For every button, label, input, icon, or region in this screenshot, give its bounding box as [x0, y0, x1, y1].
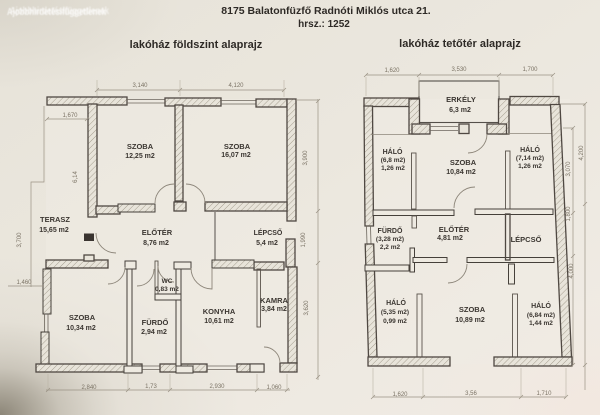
svg-text:LÉPCSŐ: LÉPCSŐ: [511, 235, 542, 244]
svg-text:(5,35 m2): (5,35 m2): [381, 309, 409, 316]
svg-text:3,140: 3,140: [132, 83, 148, 89]
svg-text:ERKÉLY: ERKÉLY: [446, 95, 476, 104]
svg-text:2,930: 2,930: [209, 384, 225, 390]
svg-text:0,83 m2: 0,83 m2: [155, 286, 179, 293]
svg-text:10,61 m2: 10,61 m2: [204, 318, 234, 325]
svg-text:lakóház földszint alaprajz: lakóház földszint alaprajz: [130, 39, 263, 51]
svg-text:FÜRDŐ: FÜRDŐ: [142, 318, 169, 327]
svg-text:2,840: 2,840: [81, 385, 97, 391]
svg-text:5,4 m2: 5,4 m2: [256, 240, 278, 247]
svg-text:HÁLÓ: HÁLÓ: [531, 301, 551, 310]
svg-text:SZOBA: SZOBA: [450, 158, 477, 167]
svg-text:3,070: 3,070: [566, 161, 572, 177]
svg-text:(6,84 m2): (6,84 m2): [527, 312, 555, 319]
svg-text:6,3 m2: 6,3 m2: [449, 107, 471, 114]
svg-text:KONYHA: KONYHA: [203, 307, 236, 316]
svg-text:4,000: 4,000: [569, 263, 575, 279]
svg-text:WC: WC: [162, 278, 173, 285]
svg-text:4,120: 4,120: [228, 83, 244, 89]
svg-text:10,89 m2: 10,89 m2: [455, 317, 485, 324]
svg-text:SZOBA: SZOBA: [459, 305, 486, 314]
svg-text:10,84 m2: 10,84 m2: [446, 169, 476, 176]
svg-text:1,73: 1,73: [145, 384, 157, 390]
svg-text:10,34 m2: 10,34 m2: [66, 325, 96, 332]
svg-text:1,460: 1,460: [16, 280, 32, 286]
svg-text:3,84 m2: 3,84 m2: [261, 306, 287, 313]
svg-text:2,94 m2: 2,94 m2: [141, 329, 167, 336]
svg-text:(6,8 m2): (6,8 m2): [381, 157, 406, 164]
svg-text:SZOBA: SZOBA: [127, 142, 154, 151]
svg-text:1,700: 1,700: [522, 67, 538, 73]
svg-text:2,2 m2: 2,2 m2: [380, 244, 401, 251]
svg-text:6,14: 6,14: [73, 171, 79, 183]
svg-text:lakóház tetőtér alaprajz: lakóház tetőtér alaprajz: [399, 38, 521, 50]
svg-text:3,700: 3,700: [17, 232, 23, 248]
svg-text:hrsz.: 1252: hrsz.: 1252: [298, 19, 350, 30]
svg-text:SZOBA: SZOBA: [69, 313, 96, 322]
svg-text:3,56: 3,56: [465, 391, 477, 397]
svg-text:(3,28 m2): (3,28 m2): [376, 236, 404, 243]
svg-text:1,620: 1,620: [392, 392, 408, 398]
svg-text:8,76 m2: 8,76 m2: [143, 240, 169, 247]
svg-text:HÁLÓ: HÁLÓ: [520, 145, 540, 154]
svg-text:ELŐTÉR: ELŐTÉR: [142, 228, 173, 237]
svg-text:KAMRA: KAMRA: [260, 296, 288, 305]
svg-text:1,060: 1,060: [266, 385, 282, 391]
svg-text:15,65 m2: 15,65 m2: [39, 227, 69, 234]
svg-text:HÁLÓ: HÁLÓ: [383, 147, 403, 156]
svg-text:ELŐTÉR: ELŐTÉR: [439, 225, 470, 234]
svg-text:8175 Balatonfüzfő Radnóti Mikl: 8175 Balatonfüzfő Radnóti Miklós utca 21…: [221, 5, 431, 17]
svg-text:FÜRDŐ: FÜRDŐ: [378, 226, 403, 235]
svg-text:(7,14 m2): (7,14 m2): [516, 155, 544, 162]
svg-text:SZOBA: SZOBA: [224, 142, 251, 151]
svg-text:1,26 m2: 1,26 m2: [381, 165, 405, 172]
svg-text:3,620: 3,620: [304, 300, 310, 316]
svg-text:LÉPCSŐ: LÉPCSŐ: [254, 228, 283, 237]
svg-text:0,99 m2: 0,99 m2: [383, 318, 407, 325]
svg-text:1,26 m2: 1,26 m2: [518, 163, 542, 170]
svg-text:3,900: 3,900: [303, 150, 309, 166]
svg-text:1,670: 1,670: [62, 113, 78, 119]
svg-text:1,990: 1,990: [301, 232, 307, 248]
svg-text:TERASZ: TERASZ: [40, 215, 70, 224]
svg-text:4,200: 4,200: [579, 145, 585, 161]
svg-text:1,44 m2: 1,44 m2: [529, 320, 553, 327]
svg-text:Ajobbhirdetésifüggetlenek: Ajobbhirdetésifüggetlenek: [10, 6, 109, 17]
svg-text:1,710: 1,710: [536, 391, 552, 397]
svg-text:1,800: 1,800: [566, 206, 572, 222]
svg-text:1,620: 1,620: [384, 68, 400, 74]
svg-text:4,81 m2: 4,81 m2: [437, 235, 463, 242]
svg-text:16,07 m2: 16,07 m2: [221, 152, 251, 159]
svg-text:12,25 m2: 12,25 m2: [125, 153, 155, 160]
svg-text:3,530: 3,530: [451, 67, 467, 73]
svg-text:HÁLÓ: HÁLÓ: [386, 298, 406, 307]
